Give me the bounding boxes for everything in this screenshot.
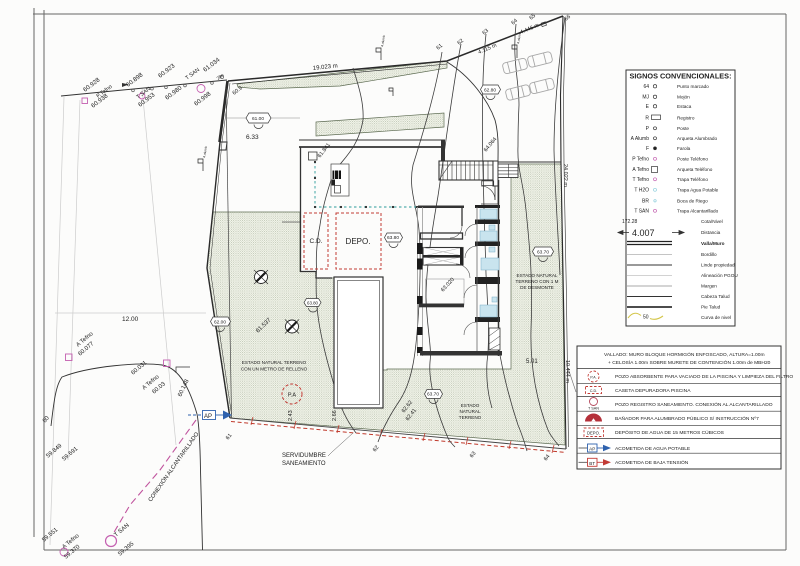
svg-text:CASETA DEPURADORA PISCINA: CASETA DEPURADORA PISCINA bbox=[615, 388, 691, 394]
svg-text:Curva de nivel: Curva de nivel bbox=[701, 315, 731, 320]
svg-text:VALLADO: MURO BLOQUE HORMIGÓN: VALLADO: MURO BLOQUE HORMIGÓN ENFOSCADO,… bbox=[604, 351, 765, 358]
svg-text:4.007: 4.007 bbox=[632, 228, 655, 238]
svg-text:5.01: 5.01 bbox=[526, 359, 538, 365]
svg-text:T SAN: T SAN bbox=[634, 209, 649, 215]
svg-text:R: R bbox=[645, 116, 649, 122]
svg-text:Registro: Registro bbox=[677, 116, 695, 121]
svg-text:TERRENO: TERRENO bbox=[459, 415, 482, 420]
svg-text:ACOMETIDA DE AGUA POTABLE: ACOMETIDA DE AGUA POTABLE bbox=[615, 446, 691, 452]
svg-text:DEPÓSITO DE AGUA DE 15 METROS: DEPÓSITO DE AGUA DE 15 METROS CÚBICOS bbox=[615, 429, 725, 436]
svg-text:C.D.: C.D. bbox=[310, 238, 323, 245]
svg-text:Poste Teléfono: Poste Teléfono bbox=[677, 157, 708, 162]
svg-text:AP: AP bbox=[589, 447, 595, 452]
svg-text:A Alumb: A Alumb bbox=[631, 136, 650, 142]
svg-text:P Tefno: P Tefno bbox=[632, 157, 649, 163]
svg-text:ESTADO NATURAL TERRENO: ESTADO NATURAL TERRENO bbox=[242, 360, 307, 365]
svg-text:Arqueta Teléfono: Arqueta Teléfono bbox=[677, 167, 713, 172]
svg-text:Estaca: Estaca bbox=[677, 104, 692, 109]
svg-text:Pie Talud: Pie Talud bbox=[701, 305, 721, 310]
svg-text:50: 50 bbox=[643, 315, 649, 321]
svg-text:Margen: Margen bbox=[701, 284, 717, 289]
svg-text:63.80: 63.80 bbox=[387, 235, 399, 241]
svg-text:C.D.: C.D. bbox=[590, 389, 598, 393]
svg-text:Trapa Teléfono: Trapa Teléfono bbox=[677, 177, 708, 182]
svg-text:BT: BT bbox=[589, 461, 595, 466]
svg-text:62.80: 62.80 bbox=[484, 88, 496, 94]
svg-text:ESTADO NATURAL: ESTADO NATURAL bbox=[517, 273, 558, 278]
svg-text:MJ: MJ bbox=[642, 95, 649, 101]
svg-text:Poste: Poste bbox=[677, 126, 689, 131]
svg-text:63.70: 63.70 bbox=[427, 392, 439, 398]
svg-text:BR: BR bbox=[642, 199, 649, 205]
svg-text:P.A.: P.A. bbox=[590, 375, 596, 379]
svg-text:+ CELOSÍA 1.00m SOBRE MURETE D: + CELOSÍA 1.00m SOBRE MURETE DE CONTENCI… bbox=[608, 359, 771, 366]
svg-text:BAÑADOR PARA ALUMBRADO PÚBLICO: BAÑADOR PARA ALUMBRADO PÚBLICO S/ INSTRU… bbox=[615, 415, 759, 422]
svg-text:ESTADO: ESTADO bbox=[461, 403, 480, 408]
svg-text:P.A: P.A bbox=[288, 393, 296, 399]
svg-text:Mojón: Mojón bbox=[677, 95, 690, 100]
svg-text:2.43: 2.43 bbox=[288, 410, 294, 421]
svg-text:63.80: 63.80 bbox=[307, 301, 319, 306]
svg-text:Arqueta Alumbrado: Arqueta Alumbrado bbox=[677, 136, 718, 141]
svg-text:172.28: 172.28 bbox=[622, 219, 638, 225]
svg-text:Boca de Riego: Boca de Riego bbox=[677, 199, 708, 204]
svg-text:61.00: 61.00 bbox=[252, 116, 264, 122]
svg-text:Distancia: Distancia bbox=[701, 230, 721, 235]
svg-text:AP: AP bbox=[204, 414, 212, 420]
svg-text:Bordillo: Bordillo bbox=[701, 252, 717, 257]
svg-text:Trapa Agua Potable: Trapa Agua Potable bbox=[677, 188, 719, 193]
svg-text:Alineación PGOU: Alineación PGOU bbox=[701, 273, 738, 278]
svg-text:64: 64 bbox=[643, 84, 649, 90]
svg-text:2.66: 2.66 bbox=[332, 410, 338, 421]
svg-text:Trapa Alcantarillado: Trapa Alcantarillado bbox=[677, 209, 719, 214]
svg-text:Farola: Farola bbox=[677, 146, 691, 151]
svg-text:62.00: 62.00 bbox=[214, 320, 226, 326]
svg-text:T H2O: T H2O bbox=[634, 188, 649, 194]
svg-text:12.00: 12.00 bbox=[122, 316, 139, 323]
svg-text:T Tefno: T Tefno bbox=[633, 177, 650, 183]
svg-text:CON UN METRO DE RELLENO: CON UN METRO DE RELLENO bbox=[241, 367, 308, 372]
svg-text:A Tefno: A Tefno bbox=[632, 167, 649, 173]
svg-text:63.70: 63.70 bbox=[537, 250, 549, 256]
svg-text:F: F bbox=[646, 146, 649, 152]
svg-text:24.022 m: 24.022 m bbox=[562, 164, 568, 187]
svg-text:Valla/Muro: Valla/Muro bbox=[701, 241, 725, 246]
svg-text:DEPO.: DEPO. bbox=[587, 431, 600, 436]
svg-text:POZO REGISTRO SANEAMIENTO. CON: POZO REGISTRO SANEAMIENTO. CONEXIÓN AL A… bbox=[615, 401, 773, 408]
svg-text:T SAN: T SAN bbox=[588, 407, 599, 411]
svg-text:SANEAMIENTO: SANEAMIENTO bbox=[282, 461, 326, 467]
svg-text:10.444 m: 10.444 m bbox=[564, 360, 570, 383]
svg-text:NATURAL: NATURAL bbox=[459, 409, 481, 414]
svg-text:POZO ABSORBENTE PARA VACIADO D: POZO ABSORBENTE PARA VACIADO DE LA PISCI… bbox=[615, 374, 793, 380]
svg-text:DE DESMONTE: DE DESMONTE bbox=[520, 285, 554, 290]
svg-text:Punto marcado: Punto marcado bbox=[677, 84, 709, 89]
svg-text:ACOMETIDA DE BAJA TENSIÓN: ACOMETIDA DE BAJA TENSIÓN bbox=[615, 459, 689, 466]
svg-text:Cota/Nivel: Cota/Nivel bbox=[701, 219, 723, 224]
svg-text:Linde propiedad: Linde propiedad bbox=[701, 263, 735, 268]
svg-text:SERVIDUMBRE: SERVIDUMBRE bbox=[282, 453, 326, 459]
svg-text:TERRENO CON 1 M: TERRENO CON 1 M bbox=[516, 279, 559, 284]
svg-text:Cabeza Talud: Cabeza Talud bbox=[701, 294, 730, 299]
svg-text:DEPO.: DEPO. bbox=[346, 237, 371, 246]
svg-text:6.33: 6.33 bbox=[246, 134, 259, 141]
svg-text:SIGNOS CONVENCIONALES:: SIGNOS CONVENCIONALES: bbox=[630, 72, 732, 81]
